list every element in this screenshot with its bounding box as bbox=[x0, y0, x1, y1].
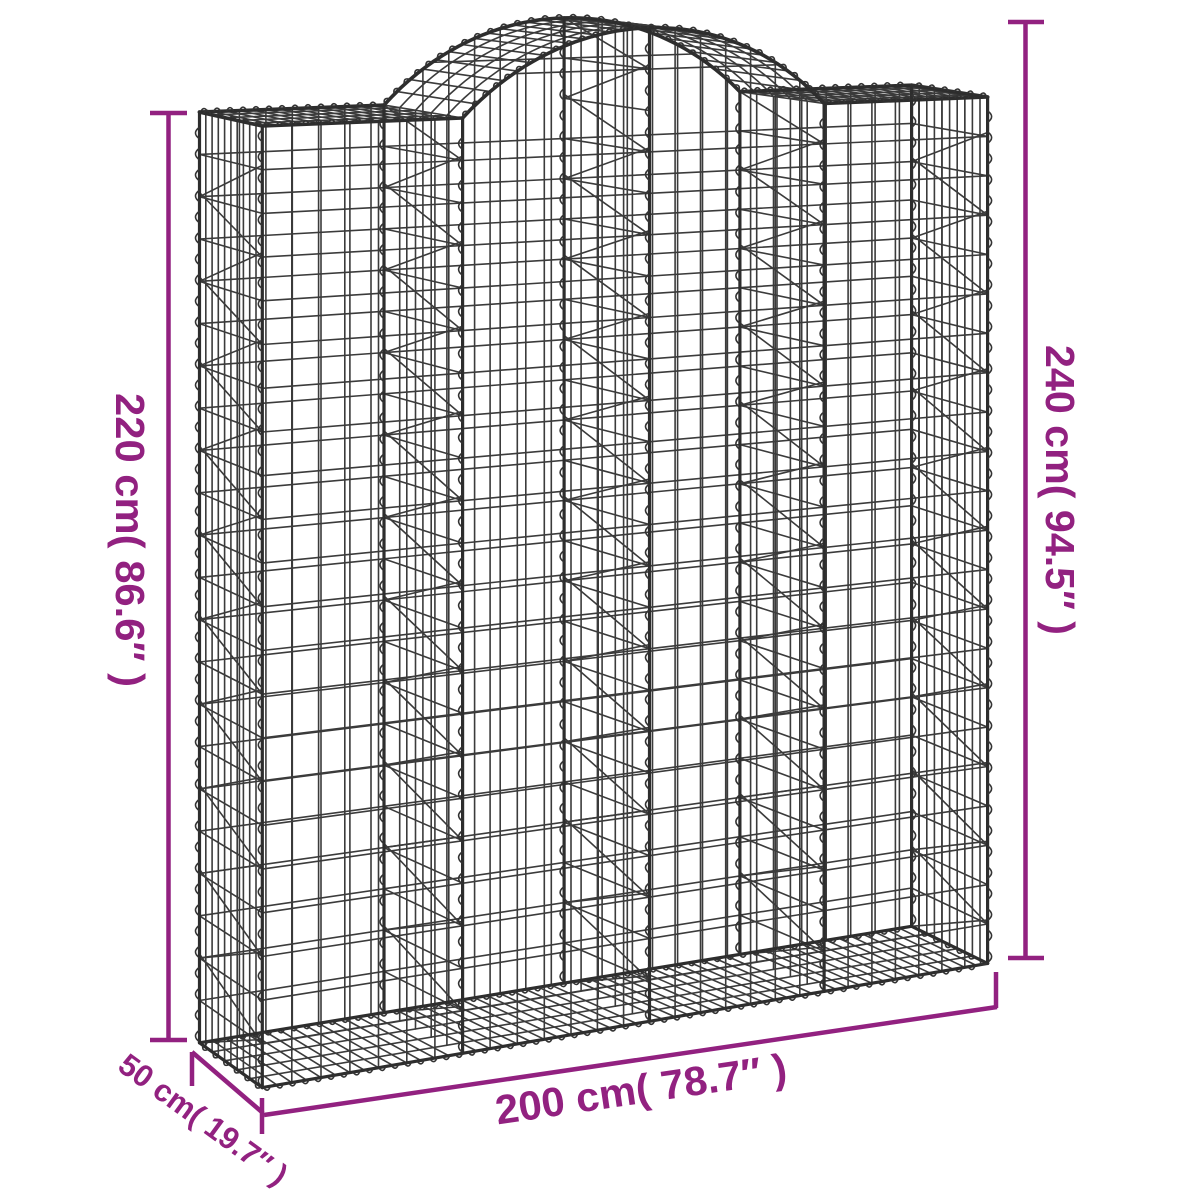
svg-text:50 cm( 19.7″ ): 50 cm( 19.7″ ) bbox=[112, 1047, 294, 1193]
svg-text:240 cm( 94.5″ ): 240 cm( 94.5″ ) bbox=[1037, 345, 1083, 635]
svg-text:220 cm( 86.6″ ): 220 cm( 86.6″ ) bbox=[107, 393, 153, 687]
